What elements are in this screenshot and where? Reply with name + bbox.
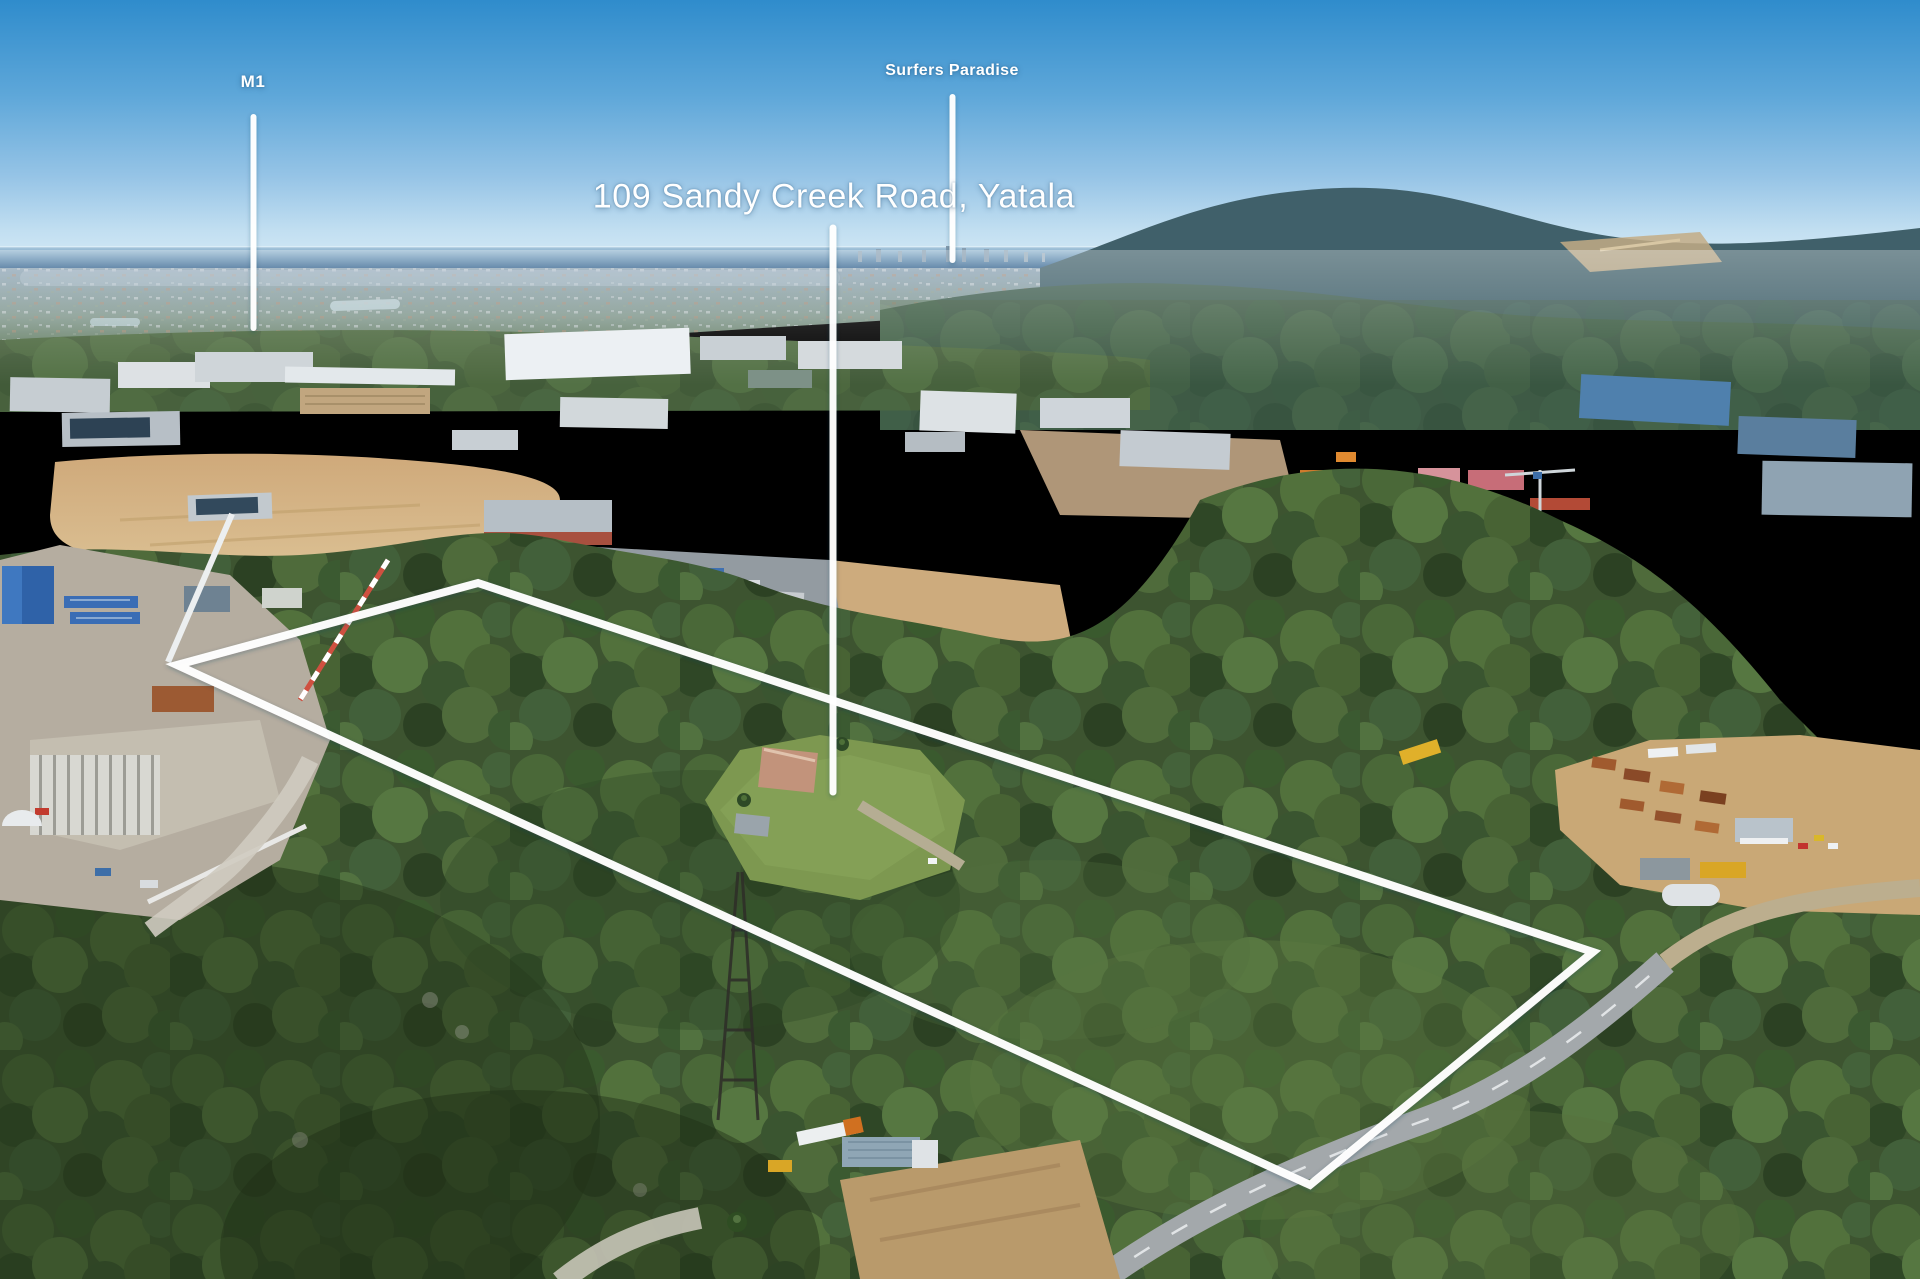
- surfers-paradise-label: Surfers Paradise: [885, 62, 1019, 80]
- solar-panel-roof: [70, 417, 150, 438]
- sky: [0, 0, 1920, 275]
- rust-shed: [152, 686, 214, 712]
- large-white-warehouse: [504, 328, 690, 380]
- arch-shed: [1662, 884, 1720, 906]
- blue-roof-warehouse: [1579, 374, 1731, 426]
- farm-house: [1735, 818, 1793, 844]
- precast-panel-yard: [30, 755, 160, 835]
- m1-label: M1: [241, 72, 266, 92]
- aerial-photo: M1 Surfers Paradise 109 Sandy Creek Road…: [0, 0, 1920, 1279]
- address-label: 109 Sandy Creek Road, Yatala: [593, 178, 1075, 217]
